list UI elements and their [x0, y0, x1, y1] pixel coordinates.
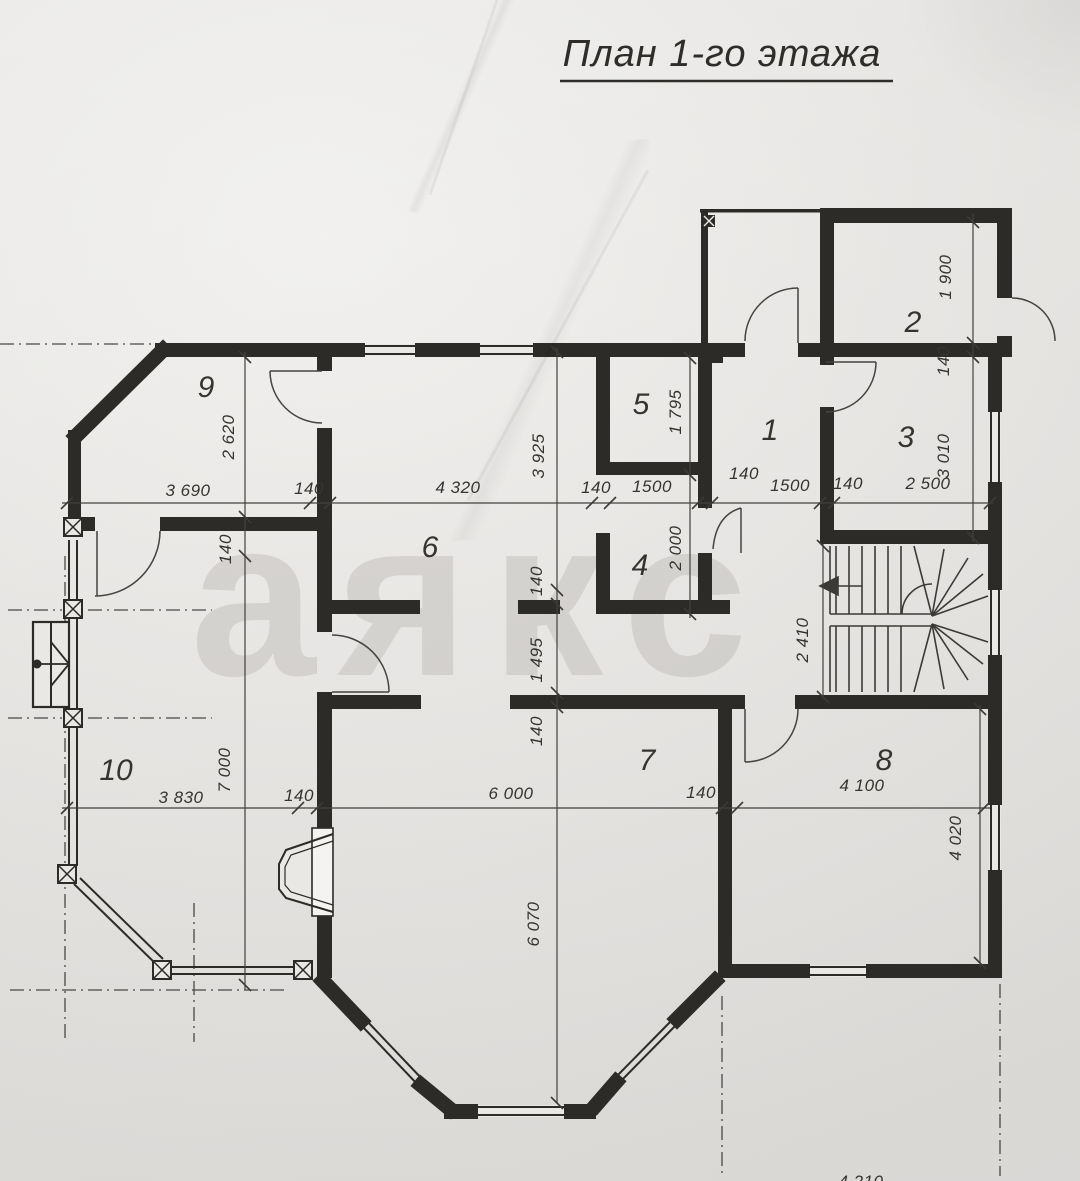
room2-right-wall [997, 208, 1012, 298]
wall-room1-room3 [820, 407, 834, 530]
page-title: План 1-го этажа [563, 33, 882, 75]
window-room6-top-2 [480, 344, 533, 356]
room2-bottom-wall [798, 343, 1012, 357]
wall-room5-room4 [596, 462, 712, 475]
room-number-10: 10 [99, 754, 133, 787]
room-number-8: 8 [876, 744, 893, 777]
stair-top-wall [820, 530, 1002, 544]
room-number-6: 6 [422, 531, 439, 564]
dim-label: 1500 [632, 477, 672, 496]
dim-label: 140 [294, 479, 324, 498]
stair-bottom-wall [795, 695, 1002, 709]
dim-label: 140 [527, 566, 546, 596]
dim-label: 1 495 [527, 637, 546, 682]
post-icon [64, 600, 82, 618]
chimney-icon [33, 622, 70, 707]
post-icon [294, 961, 312, 979]
room-number-2: 2 [904, 306, 922, 339]
porch-left-wall [701, 210, 708, 345]
door-room2-exterior [1012, 298, 1055, 341]
room-number-1: 1 [762, 414, 779, 447]
room2-top-wall [820, 208, 1012, 223]
dim-label: 2 410 [793, 617, 812, 663]
dim-label: 6 000 [488, 784, 533, 803]
dim-label: 7 000 [215, 747, 234, 792]
wall-room7-room8 [718, 709, 732, 978]
window-room6-top-1 [365, 344, 415, 356]
wall-porch-room2 [820, 212, 834, 343]
porch-post-icon [703, 215, 715, 227]
room9-diagonal-wall [76, 350, 163, 436]
windows [361, 344, 1001, 1117]
dim-label: 1500 [770, 476, 810, 495]
dim-label: 4 100 [839, 776, 884, 795]
room-number-7: 7 [639, 744, 657, 777]
dim-label: 2 620 [219, 414, 238, 460]
door-entrance-porch [745, 288, 798, 343]
dim-label: 6 070 [524, 901, 543, 946]
dim-label: 140 [934, 346, 953, 376]
dim-label: 3 925 [529, 433, 548, 478]
dim-label: 3 830 [158, 788, 203, 807]
dim-label: 140 [833, 474, 863, 493]
door-room9-room10 [95, 531, 160, 596]
dim-label: 4 020 [946, 815, 965, 860]
room4-bottom-wall [610, 600, 730, 614]
corridor-bottom-wall [510, 695, 745, 709]
window-bay-left-diagonal [361, 1020, 424, 1086]
watermark: аякс [190, 471, 769, 723]
dim-label: 2 000 [666, 525, 685, 571]
room-number-4: 4 [632, 549, 649, 582]
photo-creases [430, 0, 648, 500]
dim-label: 3 690 [165, 481, 210, 500]
dim-label: 3 010 [934, 433, 953, 478]
dim-label: 140 [686, 783, 716, 802]
dim-label: 1 900 [936, 254, 955, 299]
dim-label: 140 [581, 478, 611, 497]
dim-label: 1 795 [666, 389, 685, 434]
axis-lines [0, 344, 1000, 1176]
post-icon [58, 865, 76, 883]
dim-label: 140 [729, 464, 759, 483]
dim-label: 140 [284, 786, 314, 805]
wall-room4-room1 [698, 357, 712, 508]
window-bay-right-diagonal [614, 1019, 678, 1083]
window-bay-bottom [478, 1105, 564, 1117]
room-number-5: 5 [633, 388, 650, 421]
dim-label: 140 [527, 716, 546, 746]
post-icon [64, 518, 82, 536]
room8-bottom-wall [866, 964, 1002, 978]
wall-room6-room4 [596, 533, 610, 614]
door-room1-room3 [826, 362, 876, 412]
room9-top-wall [155, 343, 365, 357]
post-icon [153, 961, 171, 979]
dim-label-clipped: 4 210 [838, 1172, 883, 1181]
window-stairs-right [989, 590, 1001, 655]
post-icon [64, 709, 82, 727]
door-room9-room6 [270, 371, 322, 423]
room-number-9: 9 [198, 371, 215, 404]
window-room8-right [989, 805, 1001, 870]
window-room3-right [989, 412, 1001, 482]
fireplace-icon [279, 828, 333, 916]
window-room8-bottom [810, 965, 866, 977]
wall-room6-room5 [596, 343, 610, 475]
room-number-3: 3 [898, 421, 915, 454]
dim-label: 140 [216, 534, 235, 564]
floor-plan-svg: План 1-го этажа аякс [0, 0, 1080, 1181]
staircase [820, 546, 988, 692]
porch-canopy-edge [700, 209, 822, 213]
